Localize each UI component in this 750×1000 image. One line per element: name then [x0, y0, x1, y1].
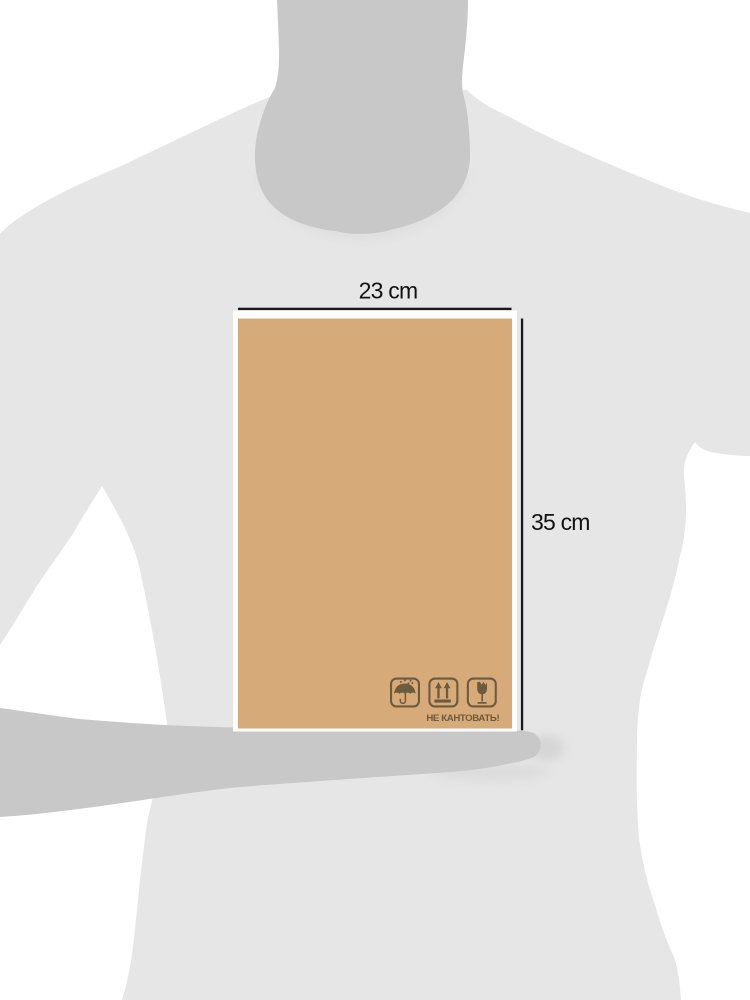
svg-text:35 cm: 35 cm: [531, 509, 590, 535]
svg-text:НЕ КАНТОВАТЬ!: НЕ КАНТОВАТЬ!: [426, 713, 499, 724]
svg-text:23 cm: 23 cm: [359, 277, 418, 303]
